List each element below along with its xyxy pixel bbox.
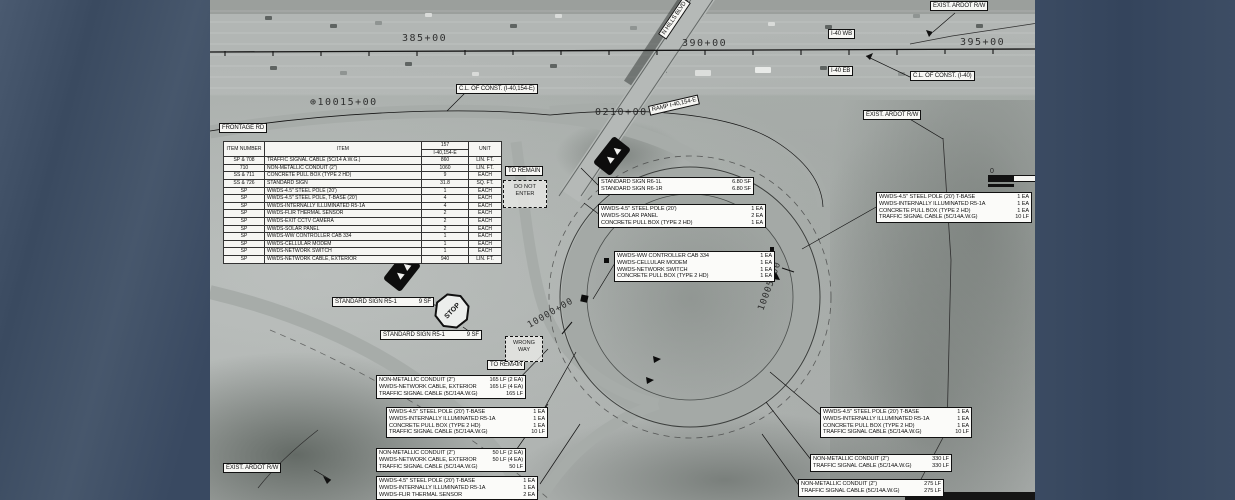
label-exist-rw-top: EXIST. ARDOT R/W — [930, 1, 988, 11]
page-frame: 385+00 390+00 395+00 ⊕10015+00 0210+00 1… — [0, 0, 1235, 500]
table-row: SPWWDS-NETWORK CABLE, EXTERIOR940LIN. FT… — [224, 255, 502, 263]
table-row: SPWWDS-FLIR THERMAL SENSOR2EACH — [224, 210, 502, 218]
station-10015: ⊕10015+00 — [310, 97, 378, 108]
table-row: SPWWDS-WW CONTROLLER CAB 3341EACH — [224, 233, 502, 241]
col-qty-line2: I-40,154-E — [422, 149, 469, 157]
station-symbol: ⊕ — [310, 97, 318, 108]
callout-southwest-pole: WWDS-4.5" STEEL POLE (20') T-BASE1 EA WW… — [386, 407, 548, 438]
callout-southwest-pole-flir: WWDS-4.5" STEEL POLE (20') T-BASE1 EA WW… — [376, 476, 538, 500]
label-exist-rw-east: EXIST. ARDOT R/W — [863, 110, 921, 120]
callout-standard-signs-r6: STANDARD SIGN R6-1L6.80 SF STANDARD SIGN… — [598, 177, 754, 195]
scale-bar-segment2 — [988, 184, 1014, 187]
plan-sheet: 385+00 390+00 395+00 ⊕10015+00 0210+00 1… — [210, 0, 1035, 500]
table-row: SPWWDS-SOLAR PANEL2EACH — [224, 225, 502, 233]
label-i40-eb: I-40 EB — [828, 66, 853, 76]
label-cl-const-i40: C.L. OF CONST. (I-40) — [910, 71, 975, 81]
callout-southwest-conduit-50: NON-METALLIC CONDUIT (2")50 LF (2 EA) WW… — [376, 448, 526, 472]
station-395: 395+00 — [960, 37, 1005, 48]
left-margin — [0, 0, 210, 500]
right-margin — [1035, 0, 1235, 500]
flow-arrow — [646, 377, 654, 384]
label-to-remain-north: TO REMAIN — [505, 166, 543, 176]
table-row: SS & 711CONCRETE PULL BOX (TYPE 2 HD)9EA… — [224, 172, 502, 180]
callout-southwest-conduit-165: NON-METALLIC CONDUIT (2")165 LF (2 EA) W… — [376, 375, 526, 399]
station-390: 390+00 — [682, 38, 727, 49]
flow-arrow — [653, 356, 661, 363]
loop-circles — [549, 156, 831, 438]
scale-bar-segments — [988, 175, 1035, 182]
table-row: 710NON-METALLIC CONDUIT (2")1060LIN. FT. — [224, 164, 502, 172]
table-row: SP & 708TRAFFIC SIGNAL CABLE (5C/14 A.W.… — [224, 157, 502, 165]
wrong-way-sign-icon: WRONG WAY — [505, 336, 543, 362]
do-not-enter-sign-icon: DO NOT ENTER — [503, 180, 547, 208]
callout-east-pole: WWDS-4.5" STEEL POLE (20') T-BASE1 EA WW… — [876, 192, 1032, 223]
table-row: SPWWDS-NETWORK SWITCH1EACH — [224, 248, 502, 256]
callout-southeast-conduit-275: NON-METALLIC CONDUIT (2")275 LF TRAFFIC … — [798, 479, 944, 497]
quantity-table: ITEM NUMBER ITEM 157 UNIT I-40,154-E SP … — [223, 141, 502, 264]
callout-southeast-conduit-330: NON-METALLIC CONDUIT (2")330 LF TRAFFIC … — [810, 454, 952, 472]
scale-zero-label: 0 — [990, 168, 1035, 175]
col-item-number: ITEM NUMBER — [224, 142, 265, 157]
table-row: SPWWDS-4.5" STEEL POLE (20')1EACH — [224, 187, 502, 195]
label-standard-sign-r5-1: STANDARD SIGN R5-19 SF — [332, 297, 434, 307]
col-item: ITEM — [265, 142, 422, 157]
callout-southeast-pole: WWDS-4.5" STEEL POLE (20') T-BASE1 EA WW… — [820, 407, 972, 438]
label-standard-sign-r5-1: STANDARD SIGN R5-19 SF — [380, 330, 482, 340]
table-row: SPWWDS-4.5" STEEL POLE, T-BASE (20')4EAC… — [224, 195, 502, 203]
col-unit: UNIT — [469, 142, 502, 157]
station-0210: 0210+00 — [595, 107, 648, 118]
label-frontage-rd: FRONTAGE RD — [219, 123, 267, 133]
table-row: SPWWDS-INTERNALLY ILLUMINATED R5-1A4EACH — [224, 202, 502, 210]
scale-bar: 0 — [988, 168, 1035, 187]
table-row: SS & 726STANDARD SIGN31.8SQ. FT. — [224, 179, 502, 187]
table-row: SPWWDS-EXIT CCTV CAMERA2EACH — [224, 217, 502, 225]
callout-controller-cabinet: WWDS-WW CONTROLLER CAB 3341 EA WWDS-CELL… — [614, 251, 775, 282]
station-385: 385+00 — [402, 33, 447, 44]
col-qty-line1: 157 — [422, 142, 469, 150]
label-cl-const-154e: C.L. OF CONST. (I-40,154-E) — [456, 84, 538, 94]
callout-pole-solar: WWDS-4.5" STEEL POLE (20')1 EA WWDS-SOLA… — [598, 204, 766, 228]
table-row: SPWWDS-CELLULAR MODEM1EACH — [224, 240, 502, 248]
label-i40-wb: I-40 WB — [828, 29, 855, 39]
label-exist-rw-southwest: EXIST. ARDOT R/W — [223, 463, 281, 473]
